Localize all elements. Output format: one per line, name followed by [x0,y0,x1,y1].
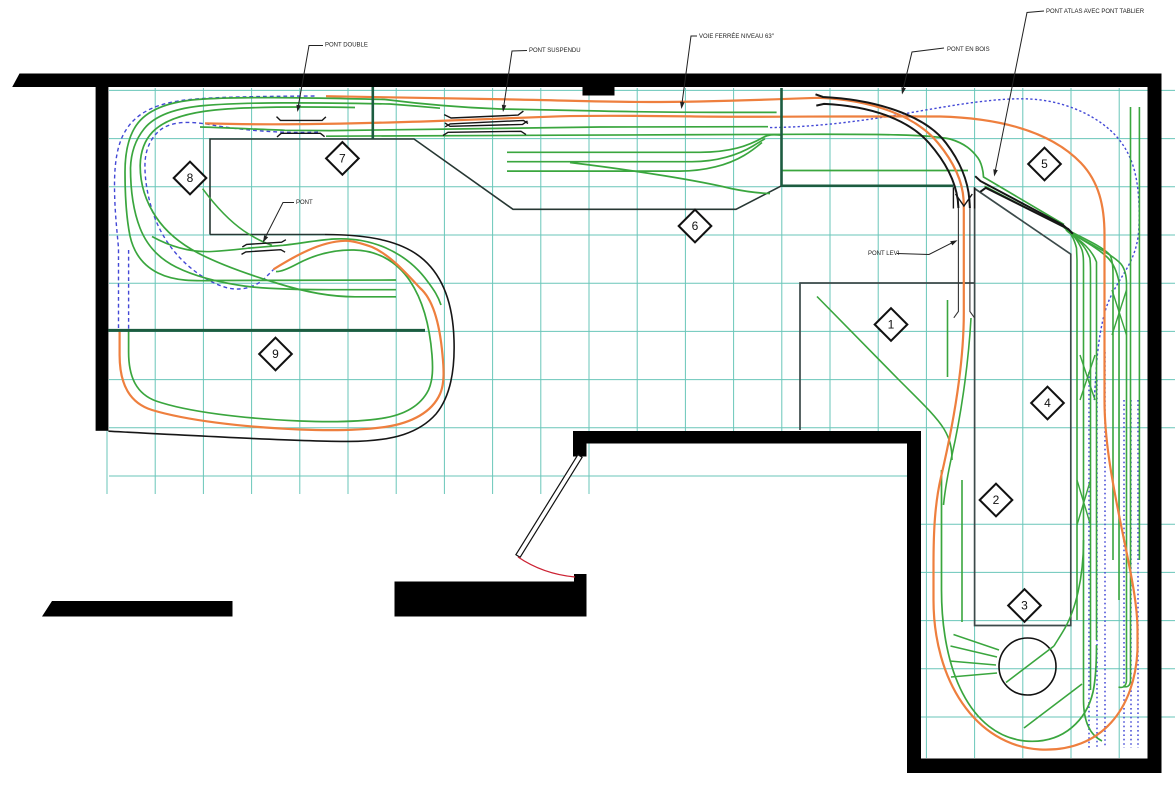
svg-text:PONT LEVI: PONT LEVI [868,251,900,257]
svg-text:VOIE FERRÉE NIVEAU 63″: VOIE FERRÉE NIVEAU 63″ [699,33,775,40]
svg-text:PONT SUSPENDU: PONT SUSPENDU [529,48,581,54]
svg-text:5: 5 [1041,157,1048,171]
svg-text:PONT DOUBLE: PONT DOUBLE [325,43,368,49]
svg-text:6: 6 [692,219,699,233]
svg-text:9: 9 [272,347,279,361]
svg-text:7: 7 [339,152,346,166]
svg-text:3: 3 [1021,599,1028,613]
svg-text:PONT ATLAS AVEC PONT TABLIER: PONT ATLAS AVEC PONT TABLIER [1046,9,1145,15]
svg-text:PONT EN BOIS: PONT EN BOIS [947,47,990,53]
svg-text:4: 4 [1044,396,1051,410]
svg-text:1: 1 [888,318,895,332]
svg-text:8: 8 [187,171,194,185]
svg-text:2: 2 [993,493,1000,507]
svg-text:PONT: PONT [296,200,313,206]
